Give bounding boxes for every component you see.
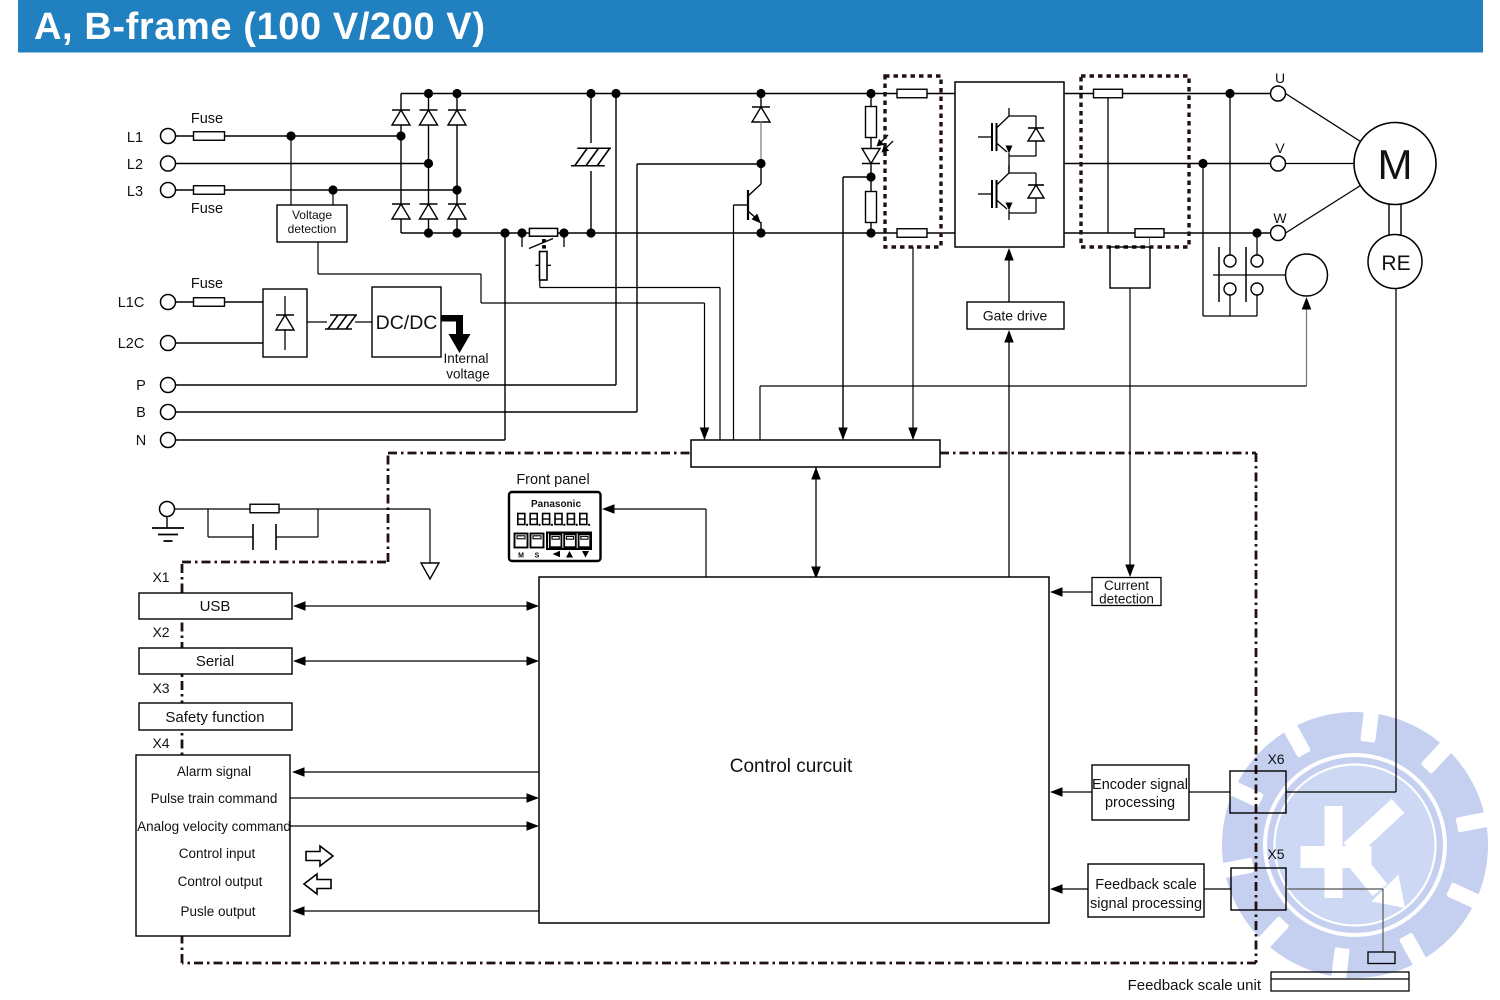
svg-text:Safety function: Safety function (165, 709, 264, 726)
svg-text:L2C: L2C (118, 336, 145, 352)
svg-text:L1C: L1C (118, 295, 145, 311)
svg-text:Gate drive: Gate drive (983, 308, 1048, 324)
svg-text:Pusle output: Pusle output (180, 904, 255, 919)
svg-text:Control curcuit: Control curcuit (730, 756, 853, 777)
svg-text:M: M (518, 553, 524, 560)
svg-text:Serial: Serial (196, 653, 234, 670)
svg-text:N: N (136, 433, 146, 449)
svg-text:U: U (1275, 70, 1285, 86)
svg-text:RE: RE (1381, 252, 1410, 275)
svg-text:Encoder signal: Encoder signal (1092, 777, 1188, 793)
svg-text:Fuse: Fuse (191, 276, 223, 292)
svg-text:X2: X2 (152, 624, 169, 640)
svg-text:Panasonic: Panasonic (531, 499, 581, 510)
svg-text:X1: X1 (152, 569, 169, 585)
svg-text:Front panel: Front panel (516, 472, 589, 488)
svg-text:Fuse: Fuse (191, 201, 223, 217)
svg-text:Pulse train command: Pulse train command (151, 791, 278, 806)
svg-text:S: S (535, 553, 540, 560)
svg-text:L3: L3 (127, 184, 143, 200)
svg-text:detection: detection (1099, 592, 1154, 607)
svg-text:L2: L2 (127, 157, 143, 173)
svg-text:Control input: Control input (179, 846, 256, 861)
svg-text:Control output: Control output (178, 874, 263, 889)
svg-text:Analog velocity command: Analog velocity command (137, 819, 291, 834)
svg-text:X5: X5 (1267, 846, 1284, 862)
svg-text:processing: processing (1105, 795, 1175, 811)
svg-text:X3: X3 (152, 680, 169, 696)
svg-text:L1: L1 (127, 130, 143, 146)
svg-text:Feedback scale unit: Feedback scale unit (1128, 977, 1262, 994)
svg-text:M: M (1378, 141, 1413, 188)
svg-text:Fuse: Fuse (191, 111, 223, 127)
svg-text:USB: USB (200, 598, 231, 615)
svg-text:Feedback scale: Feedback scale (1095, 877, 1197, 893)
svg-text:W: W (1273, 210, 1287, 226)
svg-text:Alarm signal: Alarm signal (177, 764, 251, 779)
svg-text:detection: detection (288, 222, 337, 236)
svg-text:V: V (1275, 140, 1285, 156)
svg-text:B: B (136, 405, 146, 421)
svg-text:X6: X6 (1267, 751, 1284, 767)
svg-text:P: P (136, 378, 146, 394)
svg-text:X4: X4 (152, 735, 169, 751)
svg-text:DC/DC: DC/DC (376, 312, 438, 334)
svg-text:signal processing: signal processing (1090, 896, 1202, 912)
svg-text:voltage: voltage (446, 367, 490, 382)
svg-text:Voltage: Voltage (292, 208, 332, 222)
svg-text:Internal: Internal (443, 351, 488, 366)
svg-text:A, B-frame (100 V/200 V): A, B-frame (100 V/200 V) (34, 6, 486, 48)
